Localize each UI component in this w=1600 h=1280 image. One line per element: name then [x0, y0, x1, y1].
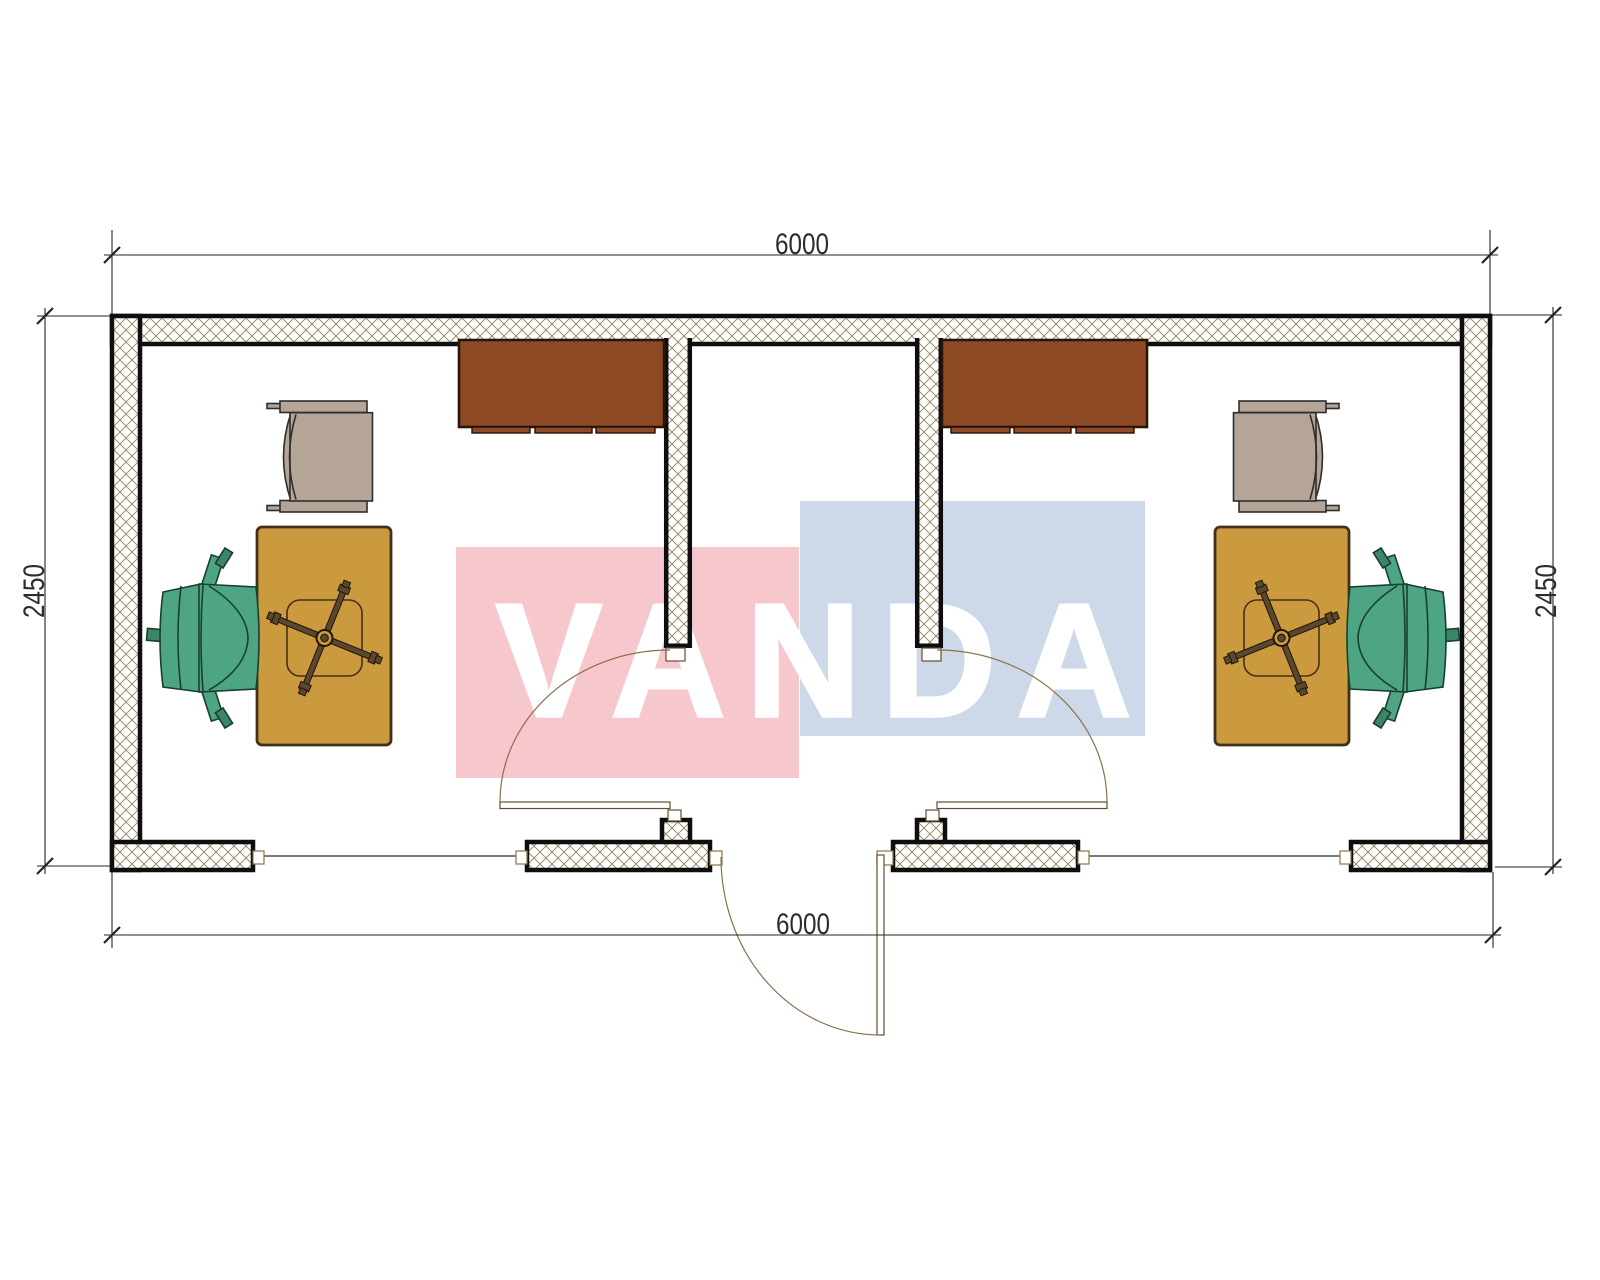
svg-text:2450: 2450: [1530, 564, 1563, 618]
svg-text:6000: 6000: [775, 228, 829, 261]
svg-text:6000: 6000: [776, 908, 830, 941]
svg-text:2450: 2450: [18, 564, 51, 618]
svg-text:VANDA: VANDA: [496, 571, 1152, 751]
